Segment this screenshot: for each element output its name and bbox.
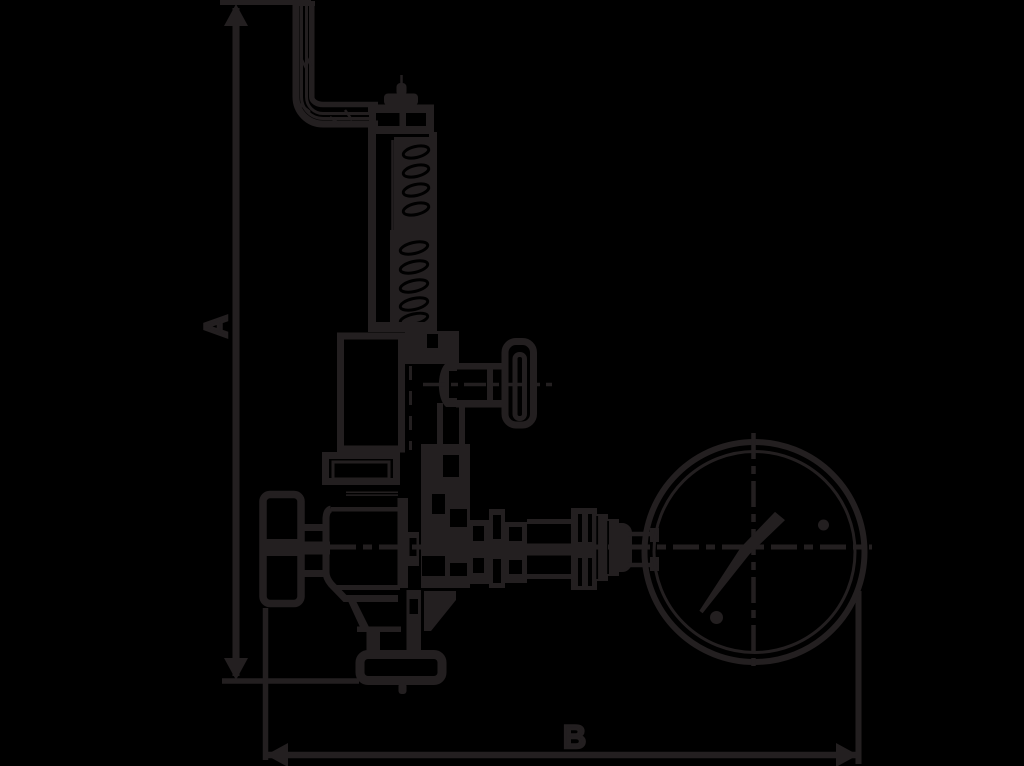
svg-text:B: B — [563, 719, 586, 755]
svg-text:A: A — [198, 315, 234, 338]
